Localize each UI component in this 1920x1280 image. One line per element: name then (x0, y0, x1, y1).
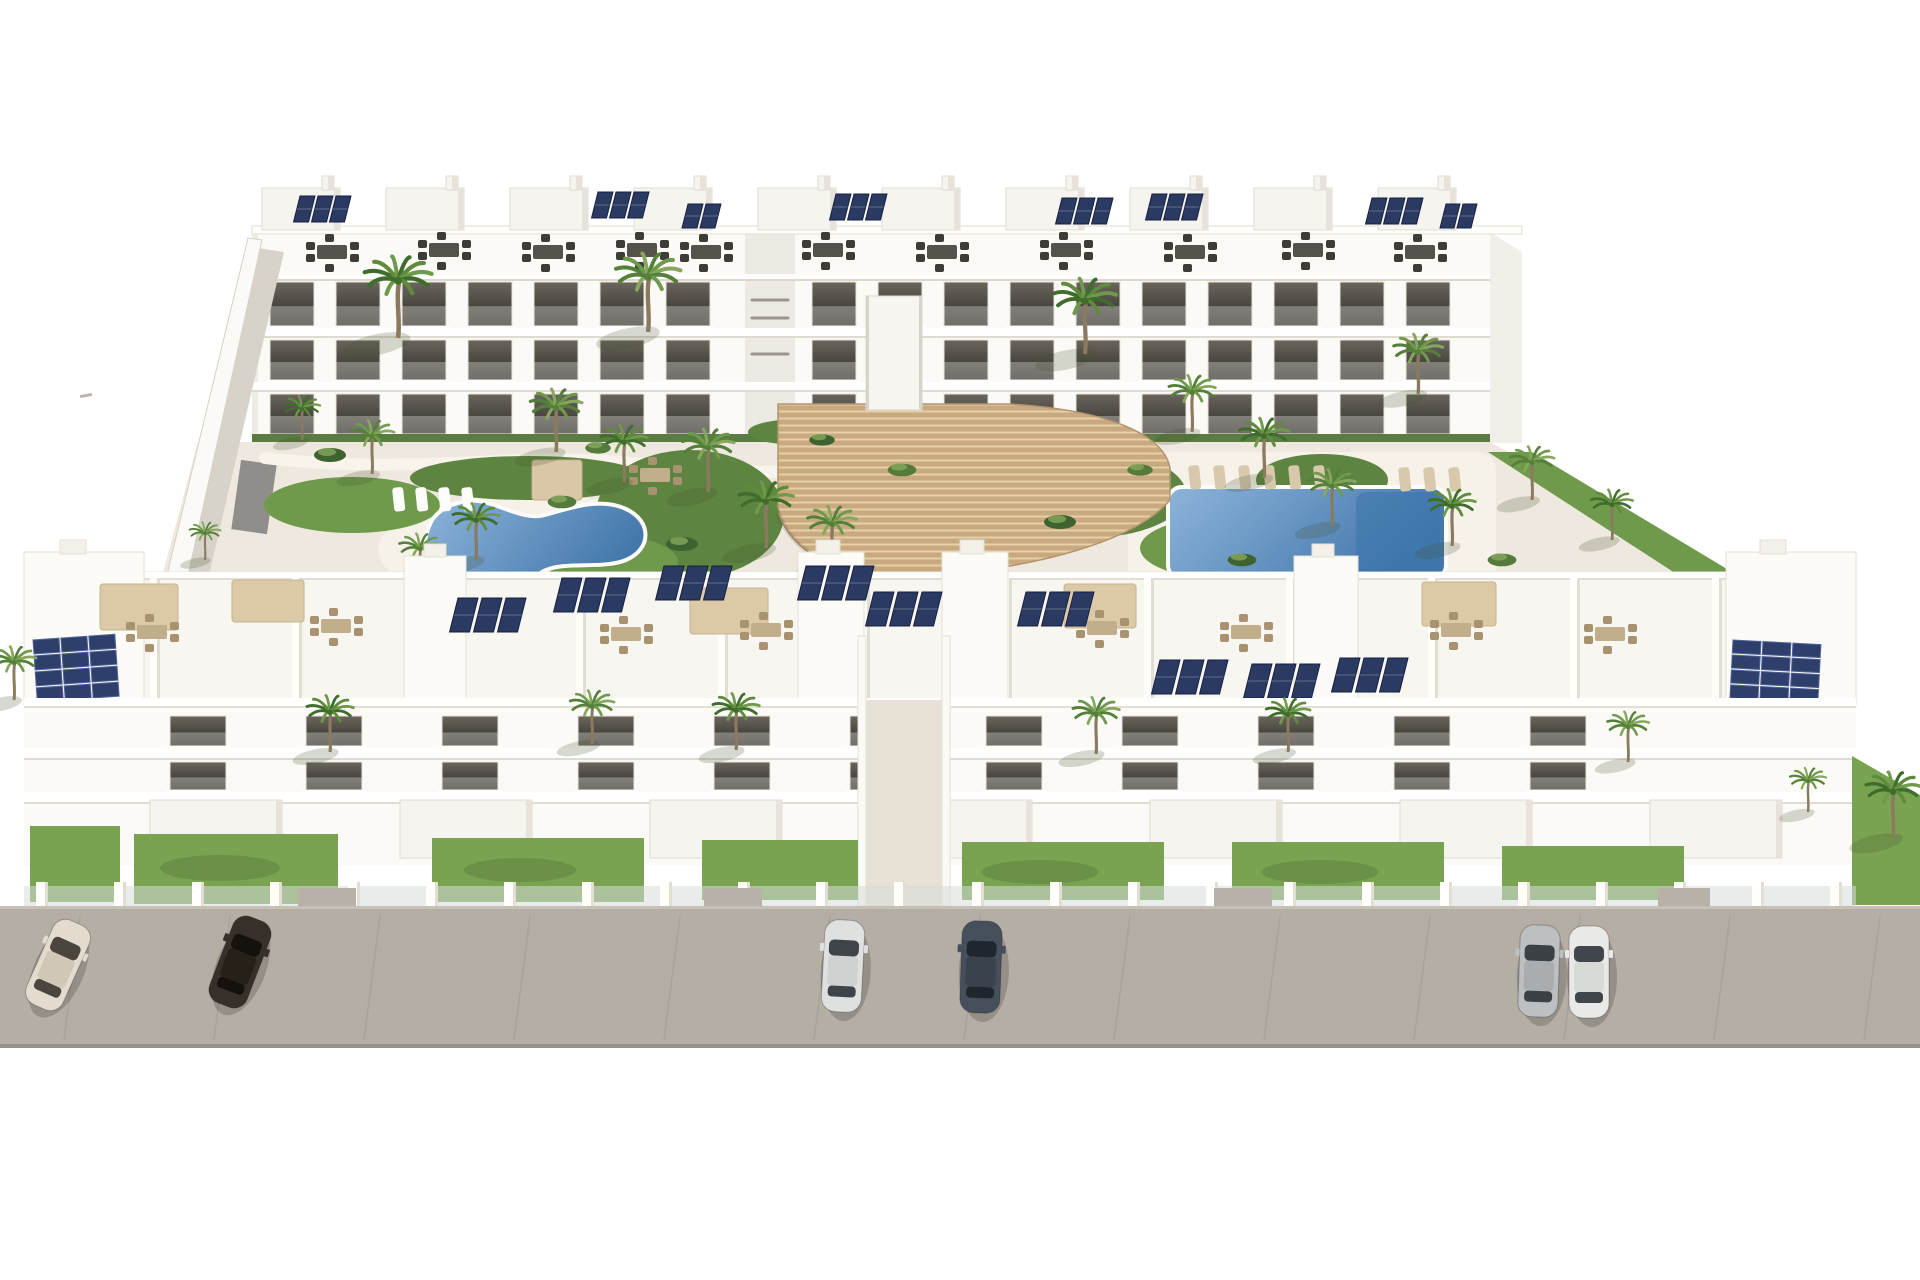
roof-pergola (1422, 582, 1496, 626)
terrace-railing-shadow (252, 279, 1490, 281)
solar-array (866, 592, 942, 626)
solar-array (592, 192, 649, 218)
lawn-shade (982, 860, 1098, 884)
tower-cap (816, 540, 840, 554)
street-top-edge (0, 906, 1920, 909)
solar-array (1440, 204, 1477, 228)
solar-array (1366, 198, 1423, 224)
shrub (314, 448, 346, 462)
corridor-floor (866, 700, 942, 906)
sun-loungers (1398, 467, 1461, 492)
bridge-walkway (866, 296, 922, 410)
solar-array (798, 566, 874, 600)
render-scene: Aerial 3D architectural rendering of a w… (0, 0, 1920, 1280)
courtyard-pergola (532, 460, 582, 500)
solar-array (450, 598, 526, 632)
solar-array (1332, 658, 1408, 692)
tower-cap (1760, 540, 1786, 554)
tower-cap (960, 540, 984, 554)
solar-array (294, 196, 351, 222)
tower-cap (1312, 544, 1334, 557)
solar-array (1146, 194, 1203, 220)
terrace-railing (252, 274, 1490, 279)
architectural-render-canvas: Aerial 3D architectural rendering of a w… (0, 0, 1920, 1280)
lap-pool-deep-end (1356, 492, 1440, 574)
corridor-wall (942, 636, 950, 906)
solar-array (1018, 592, 1094, 626)
solar-array (1056, 198, 1113, 224)
solar-array (554, 578, 630, 612)
lawn-shade (464, 858, 576, 882)
shrub (1044, 515, 1076, 529)
wall-artifact (80, 393, 92, 398)
stair-tower (942, 552, 1008, 705)
roof-pergola (100, 584, 178, 630)
roof-pergola (232, 580, 304, 622)
lawn-shade (160, 855, 280, 881)
solar-array (1152, 660, 1228, 694)
lawn-shade (1262, 860, 1378, 884)
parked-car-white-2 (1565, 926, 1617, 1027)
bridge-rail (866, 296, 869, 410)
solar-array (656, 566, 732, 600)
tower-cap (60, 540, 86, 554)
front-back-parapet (24, 572, 1856, 578)
corridor-wall (858, 636, 866, 906)
bridge-rail (919, 296, 922, 410)
tower-cap (424, 544, 446, 557)
shrub (666, 537, 698, 551)
solar-array (1244, 664, 1320, 698)
street-curb (0, 1044, 1920, 1048)
solar-array (830, 194, 887, 220)
back-right-gable (1490, 232, 1522, 443)
